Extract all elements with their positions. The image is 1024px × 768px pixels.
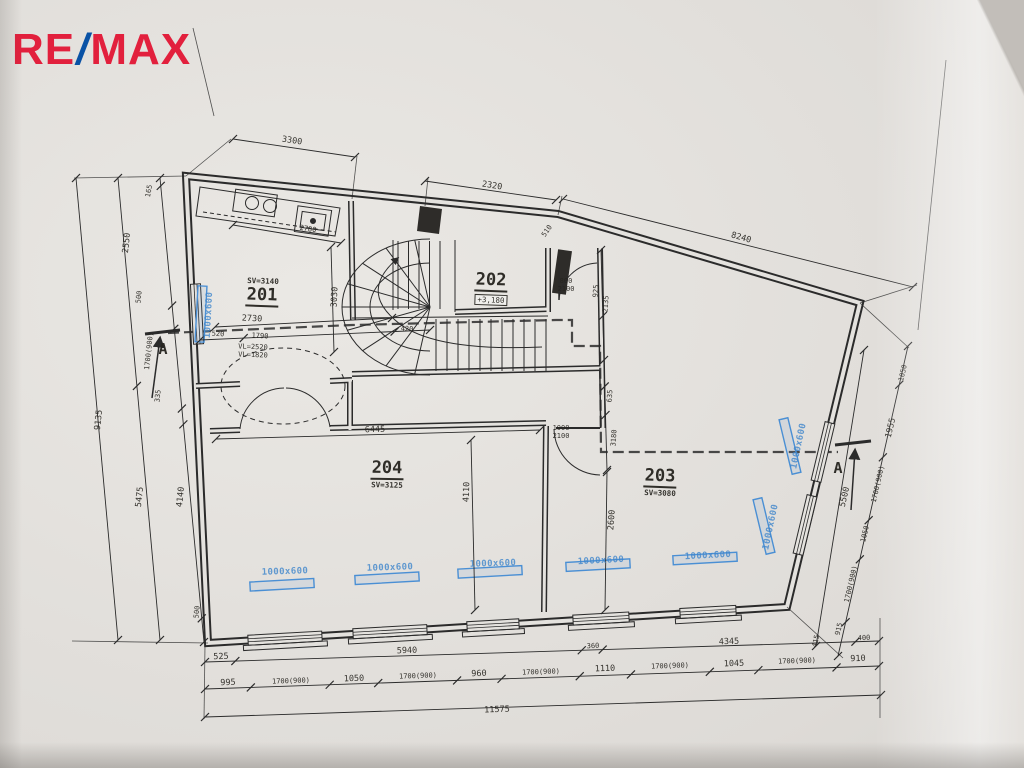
dim-label: 11575 bbox=[484, 705, 510, 716]
dim-label: 2550 bbox=[121, 232, 133, 253]
radiator-label: 1000x600 bbox=[761, 503, 780, 551]
radiator-label: 1000x600 bbox=[262, 566, 309, 578]
radiator-label: 1000x600 bbox=[684, 550, 731, 562]
dim-label: 510 bbox=[540, 224, 554, 239]
radiator-label: 1000x600 bbox=[577, 555, 624, 567]
photo-left-shadow bbox=[0, 0, 22, 768]
dim-label: 6445 bbox=[365, 425, 386, 436]
dim-label: 910 bbox=[850, 654, 866, 665]
radiator-label: 1000x600 bbox=[367, 562, 414, 574]
photo-corner-shadow bbox=[814, 0, 1024, 240]
dim-label: 5475 bbox=[134, 486, 146, 507]
section-marker-a-left: A bbox=[158, 340, 167, 358]
dim-label: 3030 bbox=[329, 287, 340, 308]
dim-label: 360 bbox=[587, 642, 600, 650]
dim-label: 1700(900) bbox=[843, 565, 859, 604]
dim-label: 9135 bbox=[93, 409, 105, 430]
dim-label: 5940 bbox=[397, 646, 418, 657]
dim-label: 400 bbox=[858, 634, 871, 642]
dim-label: 1700(900) bbox=[143, 332, 155, 371]
dim-label: 500 bbox=[192, 605, 201, 618]
logo-slash-icon: / bbox=[75, 25, 90, 74]
dim-label: 1050 bbox=[859, 525, 871, 543]
dim-label: 4345 bbox=[719, 637, 740, 648]
radiator-label: 1000x600 bbox=[789, 422, 808, 470]
dim-label: 2135 bbox=[601, 295, 610, 312]
dim-label: 420 bbox=[400, 325, 413, 334]
dim-label: 1045 bbox=[724, 659, 745, 670]
dim-label: 2730 bbox=[242, 313, 263, 324]
dim-label: 500 bbox=[134, 290, 143, 303]
dim-label: 8240 bbox=[730, 230, 752, 245]
dim-label: 635 bbox=[606, 389, 615, 402]
dim-label: 1700(900) bbox=[522, 667, 560, 676]
section-marker-a-right: A bbox=[833, 459, 842, 477]
floor-plan-photo: 33002320824016525505001700(900)335414054… bbox=[0, 0, 1024, 768]
dim-label: 800 bbox=[560, 277, 573, 285]
dim-label: 4140 bbox=[175, 486, 187, 507]
room-203-number: 203 bbox=[643, 465, 676, 488]
dim-label: 1050 bbox=[344, 674, 365, 685]
dim-label: SV=3080 bbox=[644, 488, 676, 498]
dim-label: 525 bbox=[213, 652, 229, 663]
dim-label: 915 bbox=[834, 622, 845, 636]
room-204-number: 204 bbox=[370, 458, 403, 481]
dim-label: 2100 bbox=[558, 285, 575, 293]
dim-label: 165 bbox=[144, 184, 154, 198]
dim-label: 3180 bbox=[609, 429, 618, 446]
dim-label: SV=3125 bbox=[371, 480, 403, 490]
room-202-elevation: +3,180 bbox=[474, 294, 507, 306]
dim-label: 1790 bbox=[251, 332, 268, 341]
dim-label: 4110 bbox=[462, 482, 473, 503]
dim-label: 1700(900) bbox=[651, 661, 689, 670]
dim-label: 2320 bbox=[481, 179, 503, 192]
dim-label: 925 bbox=[592, 284, 601, 297]
room-202-number: 202 bbox=[474, 269, 507, 292]
dim-label: 2600 bbox=[606, 509, 617, 530]
dim-label: 3300 bbox=[281, 135, 303, 148]
dim-label: 960 bbox=[471, 669, 487, 680]
dim-label: 520 bbox=[211, 330, 224, 339]
radiator-label: 1000x600 bbox=[470, 558, 517, 570]
dim-label: VL=1820 bbox=[238, 350, 268, 359]
dim-label: 995 bbox=[220, 678, 236, 689]
dim-label: 1110 bbox=[595, 664, 616, 675]
dim-label: 2780 bbox=[299, 224, 317, 235]
photo-bottom-shadow bbox=[0, 742, 1024, 768]
logo-max: MAX bbox=[90, 25, 191, 74]
dim-label: 5500 bbox=[838, 486, 852, 508]
room-201-number: 201 bbox=[245, 284, 278, 307]
dim-label: 1700(900) bbox=[778, 656, 816, 665]
dim-label: 415 bbox=[811, 634, 822, 648]
dim-label: 1700(900) bbox=[272, 676, 310, 685]
dim-label: 2100 bbox=[553, 432, 570, 440]
dim-label: 1700(900) bbox=[399, 671, 437, 680]
remax-logo: RE/MAX bbox=[12, 28, 191, 72]
dim-label: 335 bbox=[153, 389, 162, 402]
dim-label: 1000 bbox=[553, 424, 570, 432]
